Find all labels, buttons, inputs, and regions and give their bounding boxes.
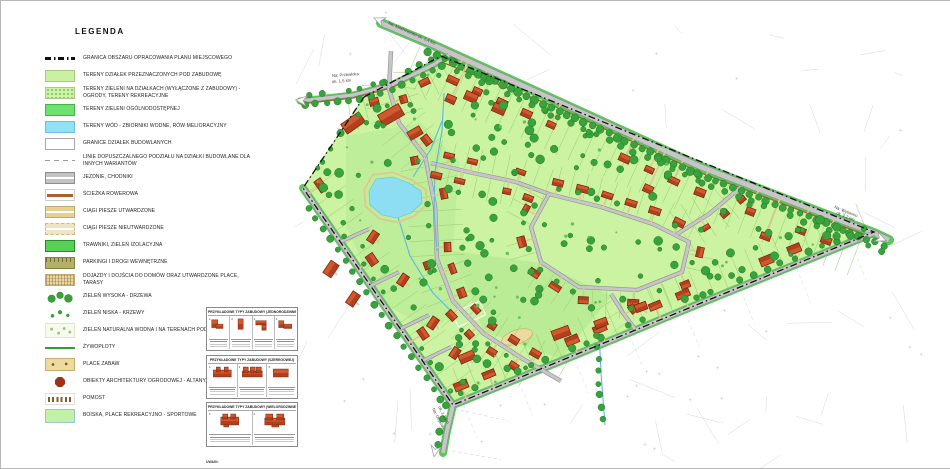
legend-swatch-gazebo — [45, 376, 75, 388]
inset-building-shape — [254, 412, 296, 428]
legend-item-label: GRANICA OBSZARU OPRACOWANIA PLANU MIEJSC… — [83, 55, 253, 61]
legend-item-plotgreen: TERENY ZIELENI NA DZIAŁKACH (WYŁĄCZONE Z… — [45, 84, 260, 101]
inset-cell: 2 — [230, 316, 252, 349]
legend-swatch-parcel — [45, 138, 75, 150]
inset-box-1: PRZYKŁADOWE TYPY ZABUDOWY (JEDNORODZINNE… — [206, 307, 298, 351]
legend-title: LEGENDA — [75, 27, 260, 36]
legend-item-parking: PARKINGI I DROGI WEWNĘTRZNE — [45, 254, 260, 271]
inset-building-shape — [268, 365, 295, 381]
legend-item-label: CIĄGI PIESZE UTWARDZONE — [83, 208, 253, 214]
inset-cell-table — [209, 339, 228, 347]
building-type-insets: PRZYKŁADOWE TYPY ZABUDOWY (JEDNORODZINNE… — [206, 307, 298, 469]
legend-swatch-plots — [45, 70, 75, 82]
legend-swatch-driveway — [45, 274, 75, 286]
legend-swatch-publicgreen — [45, 104, 75, 116]
inset-cell-table — [276, 339, 295, 347]
legend-swatch-plotgreen — [45, 87, 75, 99]
inset-cell: 3 — [267, 364, 296, 397]
inset-cell-index: 4 — [276, 317, 278, 321]
legend-swatch-pathsoft — [45, 223, 75, 235]
inset-notes: UWAGI: — [206, 450, 298, 469]
legend-swatch-pathhard — [45, 206, 75, 218]
inset-box-title: PRZYKŁADOWE TYPY ZABUDOWY (WIELORODZINNE… — [208, 404, 296, 411]
inset-cell-index: 1 — [209, 317, 211, 321]
inset-notes-title: UWAGI: — [206, 460, 219, 464]
legend-item-trees: ZIELEŃ WYSOKA - DRZEWA — [45, 288, 260, 305]
legend-item-label: TERENY ZIELENI OGÓLNODOSTĘPNEJ — [83, 106, 253, 112]
inset-cell-table — [209, 387, 236, 395]
inset-cell: 2 — [238, 364, 268, 397]
legend-item-bike: ŚCIEŻKA ROWEROWA — [45, 186, 260, 203]
legend-swatch-natgreen — [45, 323, 75, 338]
legend-item-label: JEZDNIE, CHODNIKI — [83, 174, 253, 180]
inset-cell: 3 — [253, 316, 275, 349]
inset-cell-table — [268, 387, 295, 395]
inset-cell: 1 — [208, 316, 230, 349]
inset-box-title: PRZYKŁADOWE TYPY ZABUDOWY (JEDNORODZINNE… — [208, 309, 296, 316]
inset-box-2: PRZYKŁADOWE TYPY ZABUDOWY (SZEREGOWEJ)12… — [206, 355, 298, 399]
inset-cell-index: 3 — [254, 317, 256, 321]
legend-item-driveway: DOJAZDY I DOJŚCIA DO DOMÓW ORAZ UTWARDZO… — [45, 271, 260, 288]
inset-cell-table — [239, 387, 266, 395]
inset-cell-table — [209, 434, 251, 442]
legend-swatch-trees — [45, 290, 75, 304]
legend-item-label: PARKINGI I DROGI WEWNĘTRZNE — [83, 259, 253, 265]
legend-item-label: TRAWNIKI, ZIELEŃ IZOLACYJNA — [83, 242, 253, 248]
inset-building-shape — [254, 317, 273, 333]
legend-swatch-boundary — [45, 53, 75, 65]
legend-item-pathsoft: CIĄGI PIESZE NIEUTWARDZONE — [45, 220, 260, 237]
legend-swatch-playground — [45, 358, 75, 371]
legend-swatch-hedge — [45, 342, 75, 354]
legend-item-label: TERENY WÓD - ZBIORNIKI WODNE, RÓW MELIOR… — [83, 123, 253, 129]
legend-swatch-pier — [45, 393, 75, 405]
legend-swatch-bike — [45, 189, 75, 201]
inset-cell-table — [231, 339, 250, 347]
inset-cell: 1 — [208, 411, 253, 444]
inset-building-shape — [239, 365, 266, 381]
legend-item-label: DOJAZDY I DOJŚCIA DO DOMÓW ORAZ UTWARDZO… — [83, 273, 253, 286]
inset-building-shape — [276, 317, 295, 333]
legend-swatch-road — [45, 172, 75, 184]
inset-cell-index: 2 — [254, 412, 256, 416]
legend-item-label: ŚCIEŻKA ROWEROWA — [83, 191, 253, 197]
legend-item-label: CIĄGI PIESZE NIEUTWARDZONE — [83, 225, 253, 231]
legend-swatch-parking — [45, 257, 75, 269]
legend-item-publicgreen: TERENY ZIELENI OGÓLNODOSTĘPNEJ — [45, 101, 260, 118]
legend-swatch-sports — [45, 409, 75, 423]
road-label-left-1: Na: Przewłoka — [332, 71, 360, 78]
inset-cell-index: 1 — [209, 412, 211, 416]
inset-cell-index: 1 — [209, 365, 211, 369]
inset-cell-table — [254, 339, 273, 347]
inset-cell-index: 3 — [268, 365, 270, 369]
inset-box-3: PRZYKŁADOWE TYPY ZABUDOWY (WIELORODZINNE… — [206, 402, 298, 446]
inset-building-shape — [231, 317, 250, 333]
site-plan-page: LEGENDA GRANICA OBSZARU OPRACOWANIA PLAN… — [0, 0, 950, 469]
inset-building-shape — [209, 317, 228, 333]
road-label-left-2: ok. 1,5 km — [332, 78, 352, 84]
legend-item-label: GRANICE DZIAŁEK BUDOWLANYCH — [83, 140, 253, 146]
legend-item-label: TERENY DZIAŁEK PRZEZNACZONYCH POD ZABUDO… — [83, 72, 253, 78]
inset-building-shape — [209, 365, 236, 381]
legend-item-label: TERENY ZIELENI NA DZIAŁKACH (WYŁĄCZONE Z… — [83, 86, 253, 99]
legend-swatch-shrubs — [45, 308, 75, 320]
legend-item-parcel: GRANICE DZIAŁEK BUDOWLANYCH — [45, 135, 260, 152]
inset-box-title: PRZYKŁADOWE TYPY ZABUDOWY (SZEREGOWEJ) — [208, 357, 296, 364]
legend-item-label: LINIE DOPUSZCZALNEGO PODZIAŁU NA DZIAŁKI… — [83, 154, 253, 167]
legend-item-divlines: LINIE DOPUSZCZALNEGO PODZIAŁU NA DZIAŁKI… — [45, 152, 260, 169]
inset-cell: 4 — [275, 316, 296, 349]
inset-cell-table — [254, 434, 296, 442]
inset-building-shape — [209, 412, 251, 428]
inset-cell: 2 — [253, 411, 297, 444]
legend-item-plots: TERENY DZIAŁEK PRZEZNACZONYCH POD ZABUDO… — [45, 67, 260, 84]
inset-cell-index: 2 — [231, 317, 233, 321]
legend-item-lawn: TRAWNIKI, ZIELEŃ IZOLACYJNA — [45, 237, 260, 254]
legend-item-road: JEZDNIE, CHODNIKI — [45, 169, 260, 186]
legend-swatch-divlines — [45, 155, 75, 167]
legend-item-pathhard: CIĄGI PIESZE UTWARDZONE — [45, 203, 260, 220]
legend-item-label: ZIELEŃ WYSOKA - DRZEWA — [83, 293, 253, 299]
legend-swatch-lawn — [45, 240, 75, 252]
legend-item-boundary: GRANICA OBSZARU OPRACOWANIA PLANU MIEJSC… — [45, 50, 260, 67]
inset-cell-index: 2 — [239, 365, 241, 369]
legend-item-water: TERENY WÓD - ZBIORNIKI WODNE, RÓW MELIOR… — [45, 118, 260, 135]
inset-cell: 1 — [208, 364, 238, 397]
legend-swatch-water — [45, 121, 75, 133]
